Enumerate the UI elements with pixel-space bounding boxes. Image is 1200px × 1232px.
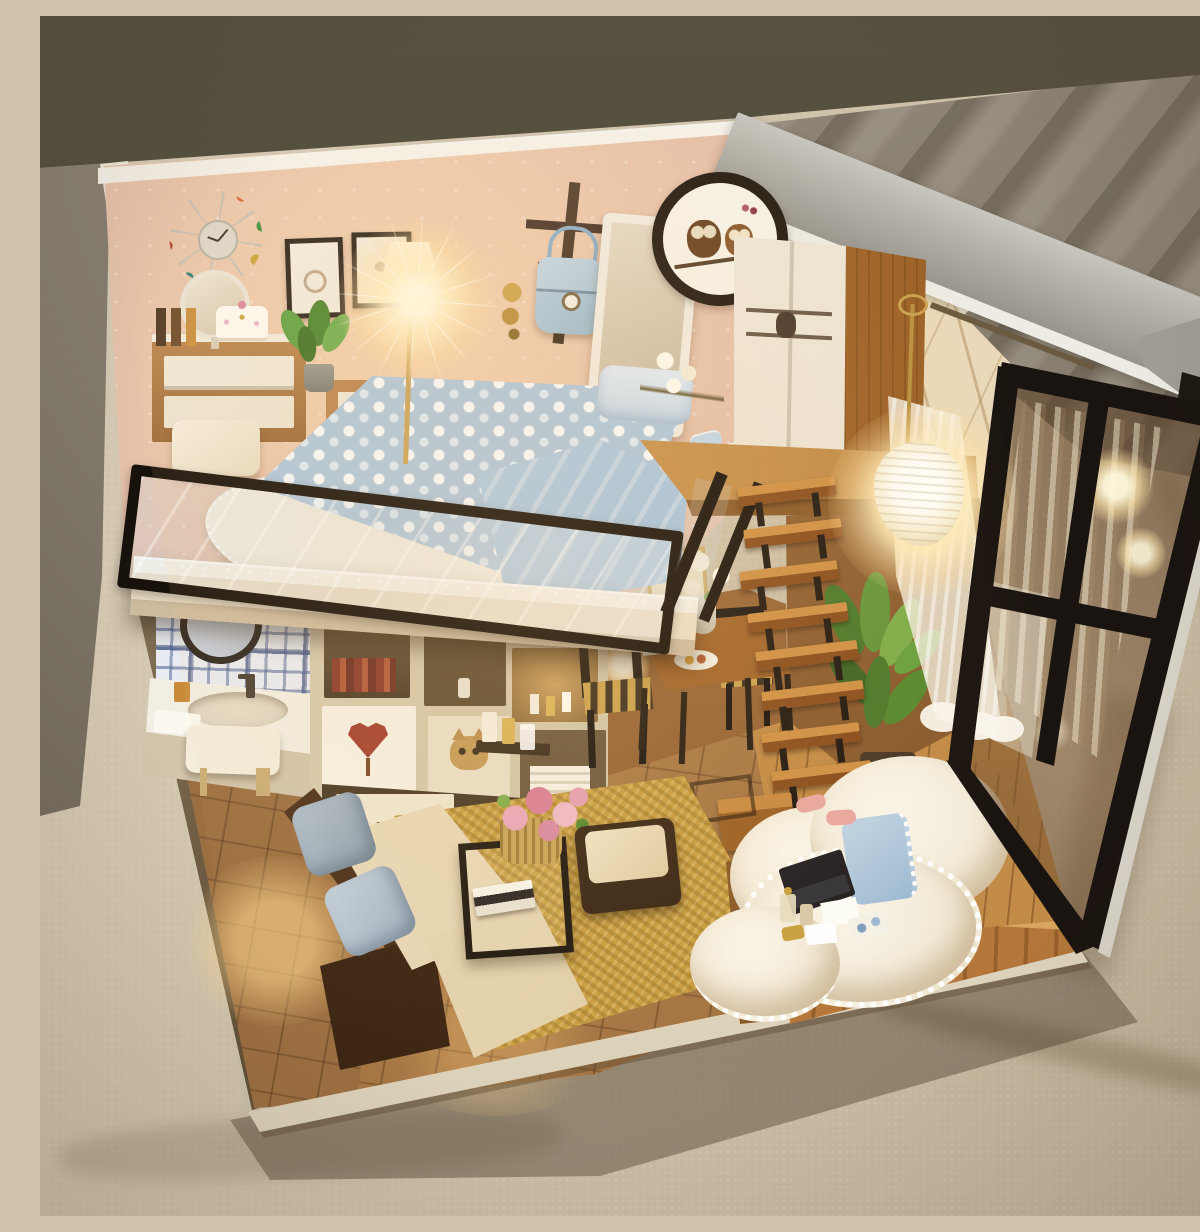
photo-vignette [40,16,1200,1216]
dollhouse-photo [40,16,1200,1216]
